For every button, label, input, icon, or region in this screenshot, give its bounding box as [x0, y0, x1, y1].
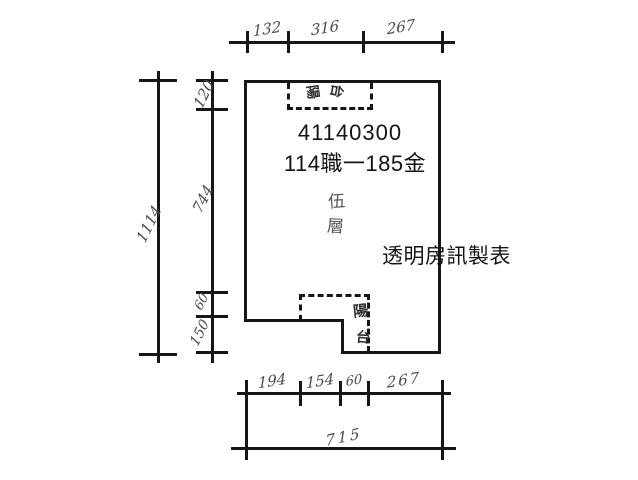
dim-label-top-3: 267	[387, 16, 416, 39]
dim-tick	[441, 31, 444, 53]
balcony-bottom-label-char2: 台	[355, 326, 371, 347]
watermark-text: 透明房訊製表	[382, 240, 511, 270]
dim-line-total	[231, 447, 456, 450]
floor-label-char2: 層	[326, 212, 344, 238]
wall-bottom-lower	[341, 351, 441, 354]
dim-label-bottom-2: 154	[306, 370, 335, 393]
dim-tick	[299, 381, 302, 406]
wall-step	[341, 319, 344, 354]
dim-tick	[362, 31, 365, 53]
unit-code: 41140300	[250, 120, 450, 146]
dim-line	[229, 41, 455, 44]
balcony-top-label-char1: 陽	[302, 84, 324, 101]
dim-label-bottom-3: 60	[346, 372, 363, 390]
dim-label-top-1: 132	[253, 18, 282, 41]
dim-label-bottom-1: 194	[258, 370, 287, 393]
wall-left	[244, 80, 247, 322]
dim-label-left-total: 1114	[133, 202, 165, 246]
dim-tick	[287, 31, 290, 53]
floor-label-char1: 伍	[327, 186, 346, 212]
dim-label-left-4: 150	[187, 317, 212, 350]
unit-name: 114職一185金	[250, 146, 460, 178]
dim-label-bottom-4: 267	[387, 368, 422, 392]
dim-tick	[367, 381, 370, 406]
wall-bottom-upper	[244, 319, 344, 322]
balcony-bottom-dash-left	[299, 294, 302, 321]
floor-plan-page: 132 316 267 1114 120 744 60 150 陽 台	[0, 0, 638, 480]
dim-line	[237, 392, 451, 395]
dim-tick	[139, 353, 177, 356]
dim-tick	[139, 79, 177, 82]
balcony-bottom-dash-top	[299, 294, 370, 297]
dim-tick	[246, 31, 249, 53]
dim-tick	[196, 351, 228, 354]
dim-line	[211, 71, 214, 363]
balcony-bottom-label-char1: 陽	[352, 299, 369, 321]
dim-label-top-2: 316	[311, 17, 340, 40]
dim-tick	[339, 381, 342, 406]
